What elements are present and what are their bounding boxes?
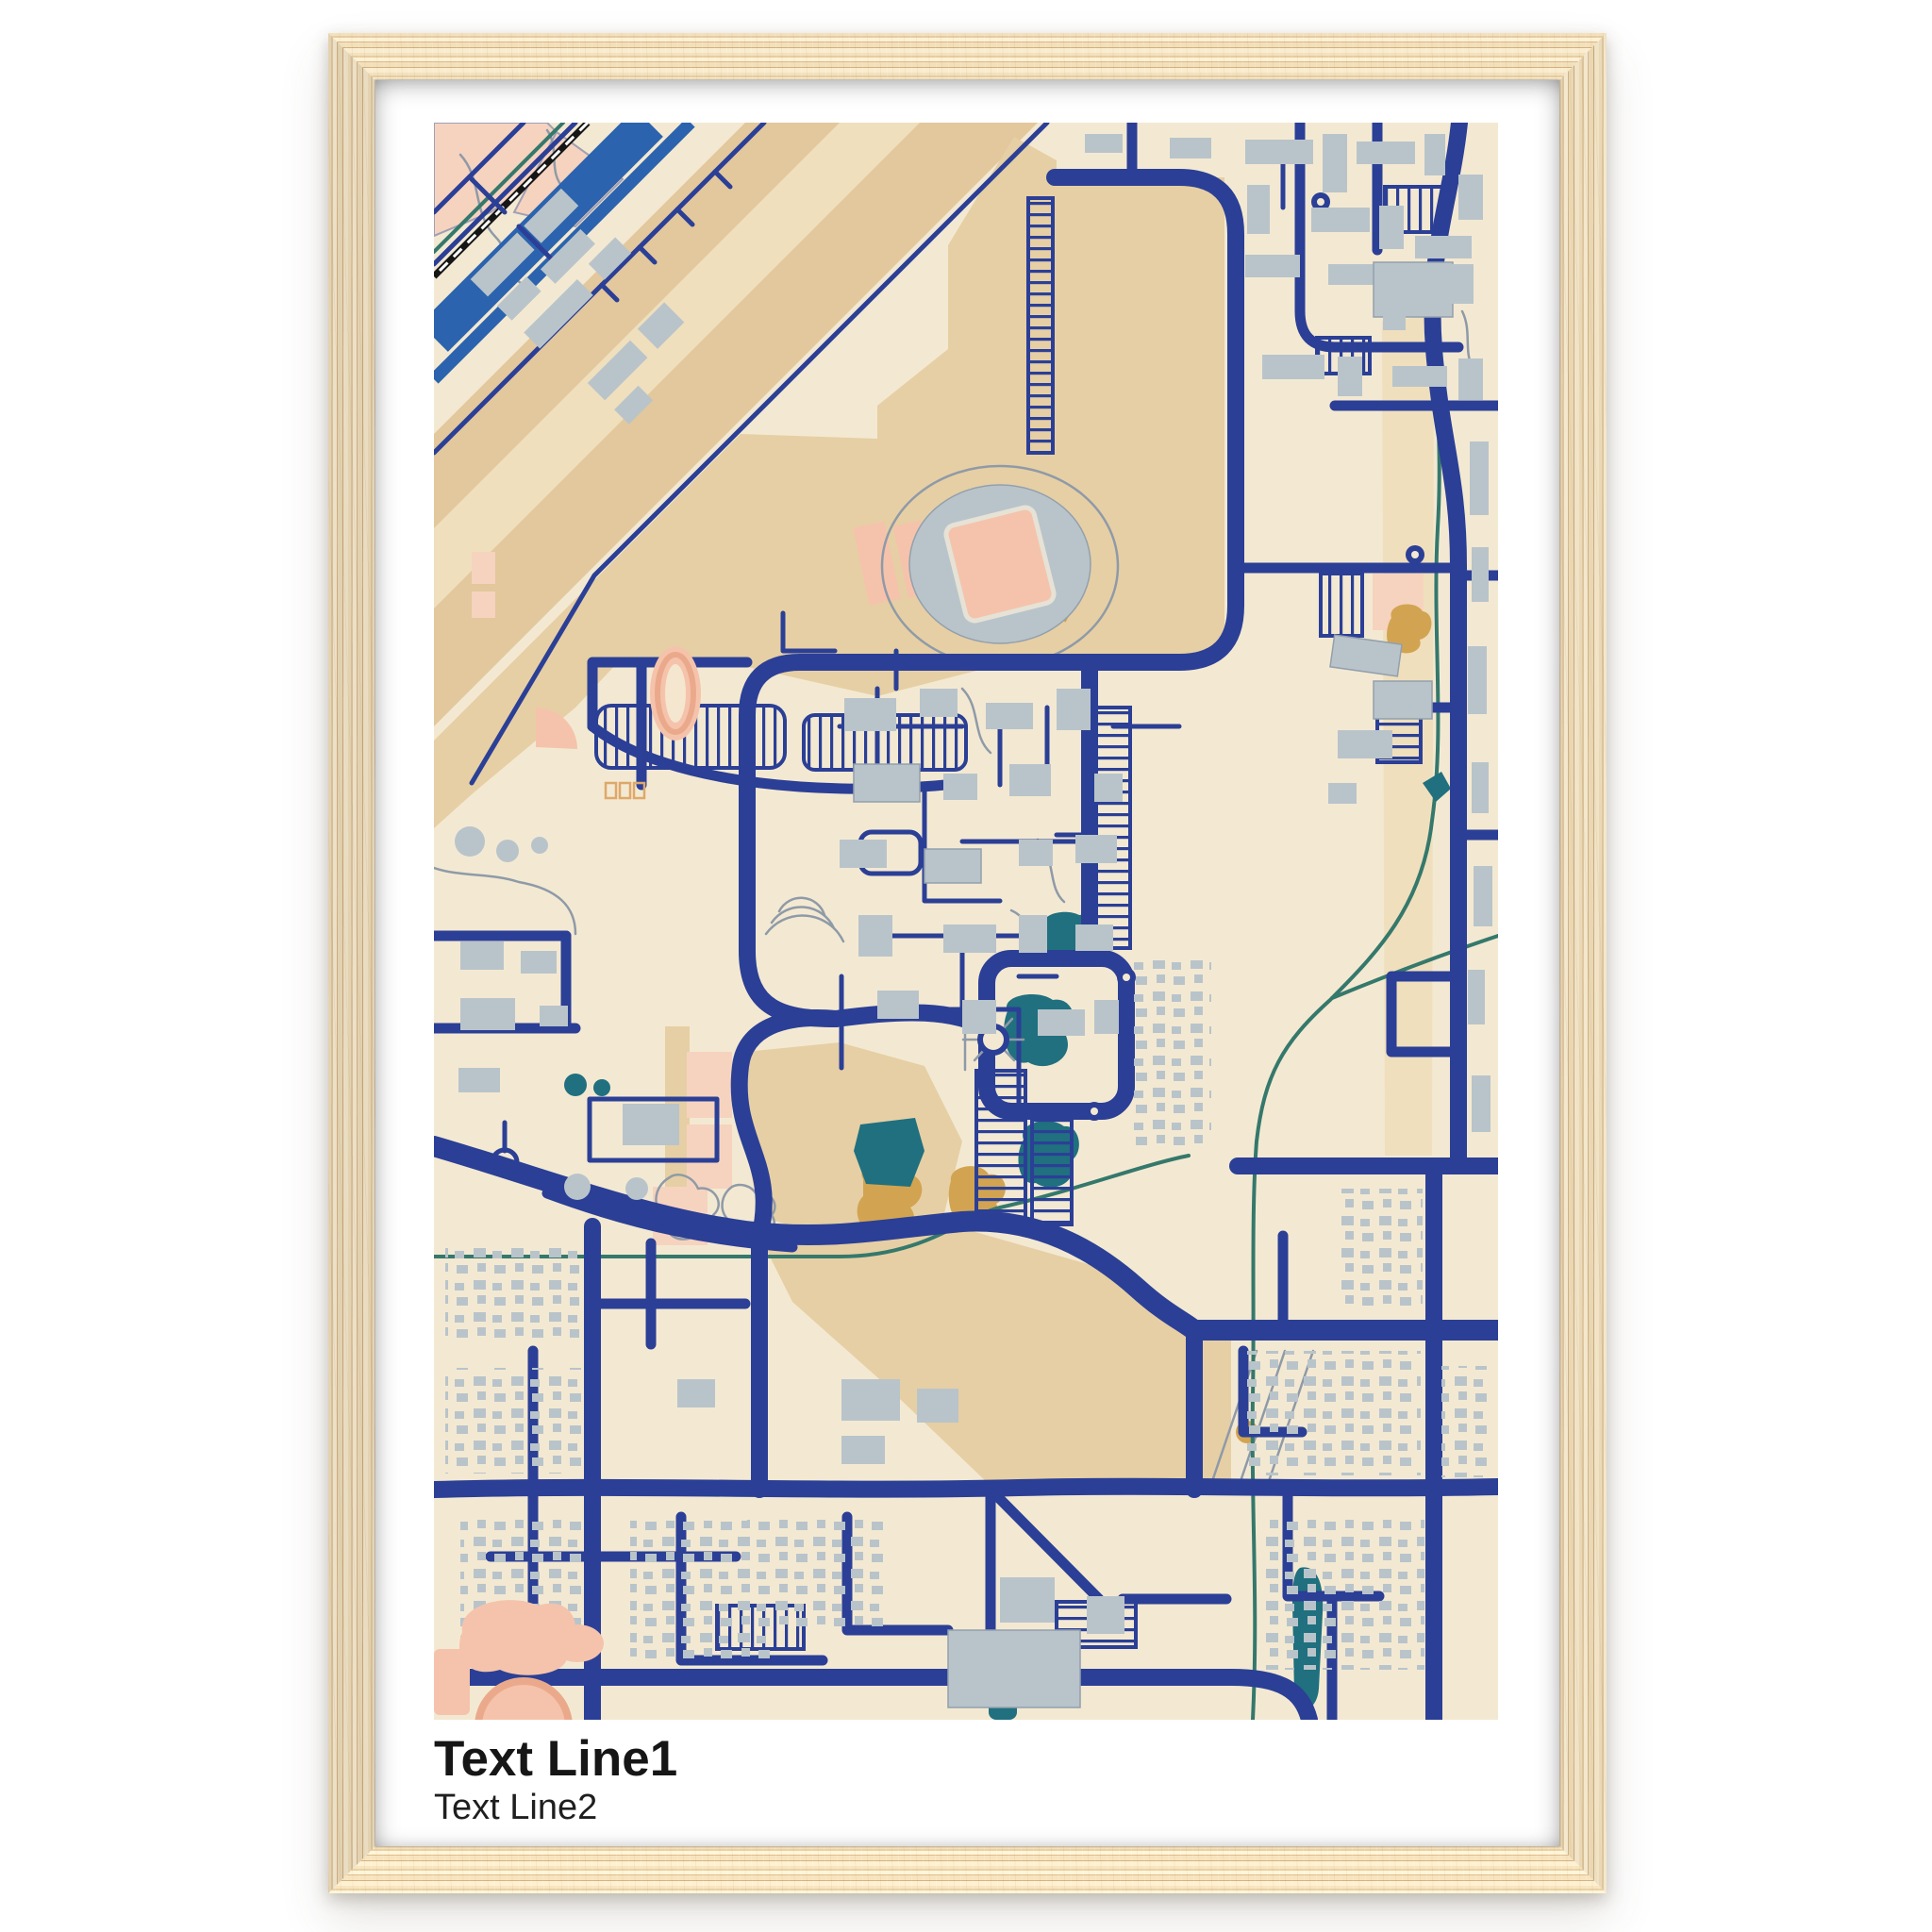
poster-title: Text Line1: [434, 1734, 677, 1785]
frame-left-rail: [328, 33, 375, 1893]
poster-mat: Text Line1 Text Line2: [375, 80, 1559, 1846]
running-track: [650, 646, 701, 741]
pond: [854, 1118, 924, 1187]
frame-bottom-rail: [328, 1846, 1607, 1893]
city-map: [434, 123, 1498, 1720]
poster-caption: Text Line1 Text Line2: [434, 1734, 677, 1827]
stadium: [909, 485, 1091, 643]
product-photo: Text Line1 Text Line2: [0, 0, 1932, 1932]
frame-right-rail: [1559, 33, 1607, 1893]
map-svg: [434, 123, 1498, 1720]
frame-top-rail: [328, 33, 1607, 80]
poster-subtitle: Text Line2: [434, 1790, 677, 1827]
poster-frame: Text Line1 Text Line2: [328, 33, 1607, 1893]
